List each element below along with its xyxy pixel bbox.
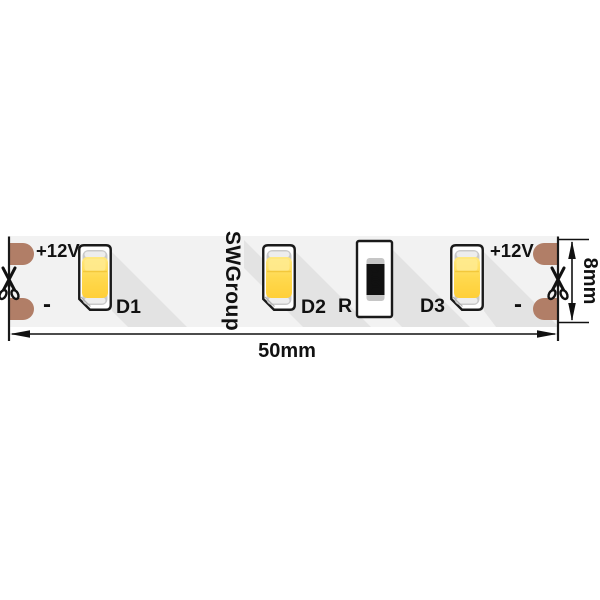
diagram-canvas: SWGroup 101 +12V - +12V - D1 D2 R D3 50m… — [0, 0, 600, 600]
pad-left-positive — [9, 243, 34, 265]
label-left-positive: +12V — [36, 240, 80, 261]
brand-logo: SWGroup — [221, 231, 244, 331]
label-right-negative: - — [514, 291, 522, 318]
arrow-left-icon — [10, 330, 30, 338]
dimension-length-label: 50mm — [258, 340, 316, 362]
label-led2: D2 — [301, 296, 326, 318]
label-led1: D1 — [116, 296, 141, 318]
label-led3: D3 — [420, 295, 445, 317]
arrow-up-icon — [568, 241, 576, 259]
label-resistor: R — [338, 295, 352, 317]
led-package-d2 — [263, 245, 295, 310]
dimension-height: 8mm — [558, 240, 600, 323]
led-package-d1 — [79, 245, 111, 310]
pad-left-negative — [9, 298, 34, 320]
arrow-down-icon — [568, 303, 576, 321]
pad-right-negative — [533, 298, 558, 320]
resistor-package: 101 — [357, 241, 392, 317]
pad-right-positive — [533, 243, 558, 265]
led-strip-diagram: SWGroup 101 +12V - +12V - D1 D2 R D3 50m… — [0, 0, 600, 600]
label-left-negative: - — [43, 291, 51, 318]
resistor-code: 101 — [368, 269, 382, 289]
led-package-d3 — [451, 245, 483, 310]
arrow-right-icon — [537, 330, 557, 338]
dimension-height-label: 8mm — [579, 258, 600, 305]
dimension-length: 50mm — [10, 330, 557, 362]
label-right-positive: +12V — [490, 240, 534, 261]
